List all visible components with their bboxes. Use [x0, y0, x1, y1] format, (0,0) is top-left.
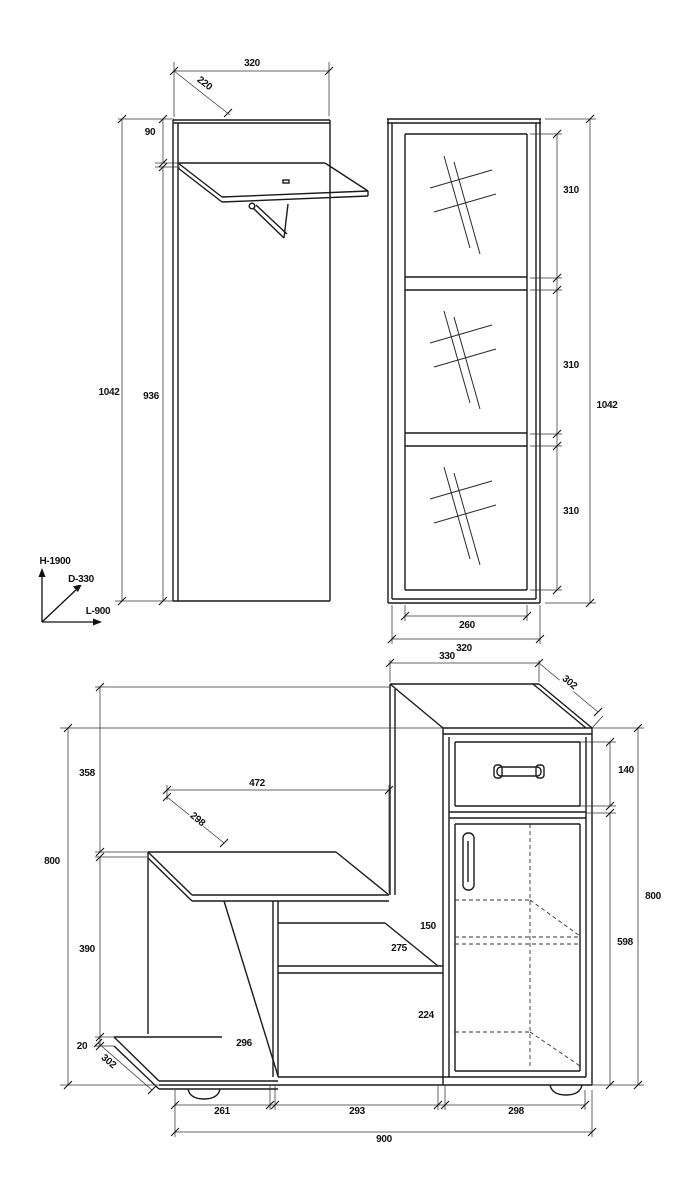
drawing-lines — [0, 0, 697, 1200]
dim-shelf-clearance: 150 — [419, 922, 437, 932]
dim-door-height: 598 — [616, 938, 634, 948]
dim-bay-right: 298 — [507, 1107, 525, 1117]
left-foot — [188, 1089, 220, 1099]
dim-cab-top-width: 330 — [438, 652, 456, 662]
furniture-technical-drawing: 320 220 90 1042 936 310 310 310 1042 260… — [0, 0, 697, 1200]
right-foot — [550, 1085, 582, 1095]
dim-plinth-thickness: 20 — [76, 1042, 89, 1052]
dim-left-lower: 390 — [78, 945, 96, 955]
dim-left-height: 800 — [43, 857, 61, 867]
dim-bench-width: 472 — [248, 779, 266, 789]
drawer-handle — [497, 767, 541, 776]
shelf-knob-dot — [283, 180, 289, 183]
mirror-glass-hatch — [430, 156, 496, 565]
dim-drawer-height: 140 — [617, 766, 635, 776]
dim-left-upper: 358 — [78, 769, 96, 779]
dim-total-width: 900 — [375, 1135, 393, 1145]
dim-panel-width: 320 — [243, 59, 261, 69]
dim-panel-height: 1042 — [97, 388, 120, 398]
dim-right-height: 800 — [644, 892, 662, 902]
dim-mirror-bottom: 310 — [562, 507, 580, 517]
dim-wardrobe-width: 320 — [455, 644, 473, 654]
dim-wardrobe-inner: 260 — [458, 621, 476, 631]
dim-bay-left: 261 — [213, 1107, 231, 1117]
dim-mirror-mid: 310 — [562, 361, 580, 371]
dim-panel-top-offset: 90 — [144, 128, 157, 138]
dimension-ticks — [64, 67, 642, 1136]
axis-depth-label: D-330 — [67, 575, 95, 585]
dim-side-panel-depth: 296 — [235, 1039, 253, 1049]
axis-length-label: L-900 — [85, 607, 112, 617]
dim-bay-middle: 293 — [348, 1107, 366, 1117]
coat-panel-outline — [173, 120, 368, 601]
dim-panel-body: 936 — [142, 392, 160, 402]
dim-shelf-depth: 275 — [390, 944, 408, 954]
bench-cabinet-outline — [114, 684, 592, 1099]
dim-bottom-clearance: 224 — [417, 1011, 435, 1021]
dim-mirror-top: 310 — [562, 186, 580, 196]
dim-wardrobe-height: 1042 — [595, 401, 618, 411]
axis-height-label: H-1900 — [39, 557, 72, 567]
mirror-wardrobe-outline — [387, 119, 541, 603]
